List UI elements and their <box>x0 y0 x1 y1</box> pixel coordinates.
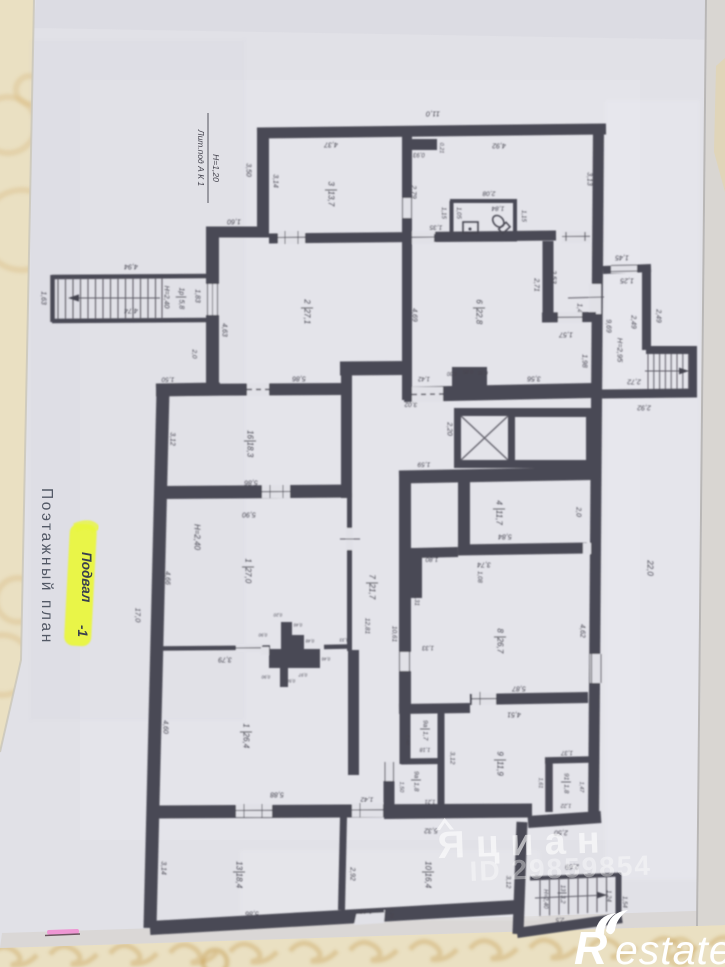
svg-text:0,30: 0,30 <box>478 369 488 375</box>
svg-text:7: 7 <box>368 574 377 579</box>
svg-text:0,48: 0,48 <box>305 639 314 644</box>
svg-text:5,8: 5,8 <box>178 299 185 309</box>
svg-text:22,8: 22,8 <box>475 308 484 325</box>
svg-text:1,33: 1,33 <box>422 644 434 650</box>
svg-text:1,15: 1,15 <box>520 210 526 222</box>
svg-text:13: 13 <box>235 861 244 870</box>
svg-text:1,57: 1,57 <box>558 331 573 338</box>
svg-text:10,61: 10,61 <box>391 626 398 643</box>
svg-text:0,50: 0,50 <box>286 679 295 684</box>
svg-text:3,13: 3,13 <box>586 172 593 186</box>
svg-text:1,42: 1,42 <box>418 375 430 381</box>
svg-text:2,0: 2,0 <box>575 506 582 517</box>
svg-text:5,86: 5,86 <box>245 910 259 917</box>
svg-text:12,81: 12,81 <box>364 618 371 635</box>
svg-text:4,60: 4,60 <box>162 720 169 734</box>
svg-text:1,60: 1,60 <box>227 218 241 225</box>
svg-text:8: 8 <box>496 628 505 633</box>
svg-text:16: 16 <box>246 430 255 439</box>
svg-text:1,18: 1,18 <box>359 908 372 915</box>
svg-text:1,54: 1,54 <box>621 896 627 908</box>
svg-text:4,51: 4,51 <box>507 711 521 718</box>
svg-text:0,97: 0,97 <box>298 673 307 678</box>
svg-text:21,7: 21,7 <box>368 583 377 600</box>
svg-text:3,14: 3,14 <box>160 861 167 875</box>
svg-text:1,84: 1,84 <box>491 205 504 212</box>
svg-text:3,02: 3,02 <box>404 401 417 408</box>
svg-text:2,49: 2,49 <box>630 314 637 329</box>
svg-text:Н=1,20: Н=1,20 <box>211 154 221 182</box>
svg-text:2,79: 2,79 <box>410 184 417 199</box>
svg-text:11,0: 11,0 <box>425 110 440 119</box>
svg-text:9,69: 9,69 <box>605 319 612 333</box>
svg-text:1: 1 <box>242 723 251 727</box>
svg-text:16,4: 16,4 <box>424 873 433 889</box>
svg-text:1,18: 1,18 <box>419 746 431 752</box>
svg-text:5,86: 5,86 <box>292 375 306 382</box>
svg-text:2,71: 2,71 <box>533 277 540 292</box>
svg-text:9: 9 <box>496 751 505 756</box>
svg-text:4,63: 4,63 <box>221 323 228 337</box>
svg-text:26,4: 26,4 <box>242 732 251 749</box>
svg-text:1,25: 1,25 <box>620 277 634 284</box>
svg-text:4,74: 4,74 <box>124 307 138 314</box>
svg-text:0,46: 0,46 <box>321 657 330 662</box>
svg-text:ID 29859854: ID 29859854 <box>469 850 652 887</box>
svg-text:2,53: 2,53 <box>550 269 557 284</box>
svg-text:3,56: 3,56 <box>527 375 541 382</box>
svg-text:0,21: 0,21 <box>438 143 444 154</box>
svg-text:4,92: 4,92 <box>492 142 506 149</box>
svg-text:1,35: 1,35 <box>429 224 442 231</box>
svg-text:2,0: 2,0 <box>191 348 198 358</box>
svg-text:Н=2,95: Н=2,95 <box>616 338 625 363</box>
svg-text:Н=2,40: Н=2,40 <box>193 524 202 551</box>
svg-text:5,90: 5,90 <box>242 511 256 518</box>
svg-text:Подвал: Подвал <box>79 552 94 603</box>
svg-text:1,8: 1,8 <box>563 784 570 793</box>
svg-text:0,46: 0,46 <box>293 623 302 628</box>
svg-text:3: 3 <box>327 181 336 186</box>
svg-text:2,72: 2,72 <box>627 378 642 385</box>
svg-text:0,93: 0,93 <box>413 151 425 157</box>
svg-text:2,92: 2,92 <box>637 404 652 411</box>
svg-text:0,20: 0,20 <box>273 613 282 618</box>
svg-text:3,79: 3,79 <box>218 656 232 663</box>
svg-text:18,4: 18,4 <box>235 873 244 889</box>
svg-text:4,37: 4,37 <box>323 141 338 148</box>
svg-text:1,48: 1,48 <box>404 735 410 747</box>
svg-text:26,7: 26,7 <box>496 637 505 654</box>
svg-text:22,0: 22,0 <box>646 559 655 576</box>
svg-text:0,31: 0,31 <box>413 594 419 606</box>
svg-text:3,2: 3,2 <box>559 895 565 904</box>
svg-text:27,1: 27,1 <box>303 308 312 325</box>
svg-text:10: 10 <box>424 861 433 870</box>
svg-text:4,94: 4,94 <box>124 263 138 270</box>
svg-text:2,92: 2,92 <box>349 866 356 881</box>
svg-text:4,62: 4,62 <box>579 624 586 638</box>
svg-text:1,7: 1,7 <box>422 731 429 740</box>
svg-text:5,84: 5,84 <box>498 533 512 540</box>
svg-text:0,30: 0,30 <box>447 370 457 376</box>
svg-text:1,21: 1,21 <box>425 798 436 804</box>
svg-text:1,22: 1,22 <box>561 802 572 808</box>
svg-text:1,15: 1,15 <box>440 207 446 219</box>
svg-text:Н=2,40: Н=2,40 <box>542 889 548 909</box>
svg-text:0,90: 0,90 <box>261 675 270 680</box>
svg-text:4,69: 4,69 <box>411 308 418 322</box>
svg-text:-1: -1 <box>75 625 90 637</box>
svg-text:1р: 1р <box>178 288 185 296</box>
svg-text:2,49: 2,49 <box>655 308 662 323</box>
svg-text:9а: 9а <box>422 720 429 728</box>
svg-text:5,86: 5,86 <box>244 479 258 486</box>
svg-text:27,0: 27,0 <box>244 567 253 584</box>
svg-text:1,24: 1,24 <box>605 890 611 902</box>
svg-text:9а: 9а <box>413 771 420 779</box>
svg-text:Поэтажный план: Поэтажный план <box>38 488 55 645</box>
svg-text:3,50: 3,50 <box>245 163 252 177</box>
svg-text:4: 4 <box>495 500 504 505</box>
svg-text:1,50: 1,50 <box>161 376 174 383</box>
svg-text:1,83: 1,83 <box>194 289 201 303</box>
svg-text:1,63: 1,63 <box>40 291 47 305</box>
svg-text:3,12: 3,12 <box>169 432 176 446</box>
svg-text:R: R <box>574 922 607 967</box>
svg-text:2: 2 <box>303 298 312 304</box>
svg-text:Лит.под А К 1: Лит.под А К 1 <box>196 129 206 187</box>
svg-text:3,74: 3,74 <box>477 561 491 568</box>
svg-text:1,42: 1,42 <box>360 796 373 803</box>
svg-text:13,7: 13,7 <box>327 191 336 207</box>
svg-text:2,08: 2,08 <box>482 190 496 197</box>
svg-text:1,61: 1,61 <box>537 778 543 789</box>
svg-text:1,33: 1,33 <box>339 638 348 643</box>
svg-text:5,87: 5,87 <box>511 685 526 692</box>
svg-text:4,66: 4,66 <box>164 571 171 585</box>
svg-text:1,08: 1,08 <box>476 571 482 583</box>
svg-text:2,20: 2,20 <box>446 421 453 436</box>
svg-text:1,47: 1,47 <box>578 782 584 794</box>
svg-text:17,0: 17,0 <box>134 608 143 623</box>
svg-text:1,59: 1,59 <box>417 461 430 468</box>
svg-text:1,45: 1,45 <box>615 254 629 261</box>
svg-text:3,12: 3,12 <box>449 752 456 765</box>
svg-text:1,37: 1,37 <box>561 749 573 755</box>
svg-text:Н=2,40: Н=2,40 <box>163 286 170 309</box>
svg-text:18,3: 18,3 <box>246 442 255 458</box>
svg-text:6: 6 <box>475 299 484 304</box>
svg-text:1,8: 1,8 <box>413 782 420 791</box>
svg-text:0,85: 0,85 <box>462 368 474 374</box>
svg-text:5,32: 5,32 <box>424 827 438 834</box>
svg-text:1,80: 1,80 <box>425 556 438 563</box>
svg-text:1,98: 1,98 <box>581 354 588 368</box>
svg-text:11,9: 11,9 <box>496 761 505 777</box>
svg-text:2,5: 2,5 <box>555 916 565 922</box>
svg-text:0,90: 0,90 <box>258 633 267 638</box>
svg-text:0,20: 0,20 <box>388 908 394 920</box>
svg-text:1,50: 1,50 <box>398 782 404 794</box>
svg-text:5,88: 5,88 <box>270 791 284 798</box>
svg-text:91: 91 <box>563 773 570 781</box>
svg-text:11,7: 11,7 <box>495 510 504 526</box>
svg-text:estate: estate <box>615 927 725 967</box>
svg-text:1,05: 1,05 <box>455 207 461 219</box>
svg-text:13: 13 <box>559 885 565 892</box>
svg-text:1: 1 <box>244 558 253 562</box>
svg-text:3,14: 3,14 <box>272 174 279 188</box>
